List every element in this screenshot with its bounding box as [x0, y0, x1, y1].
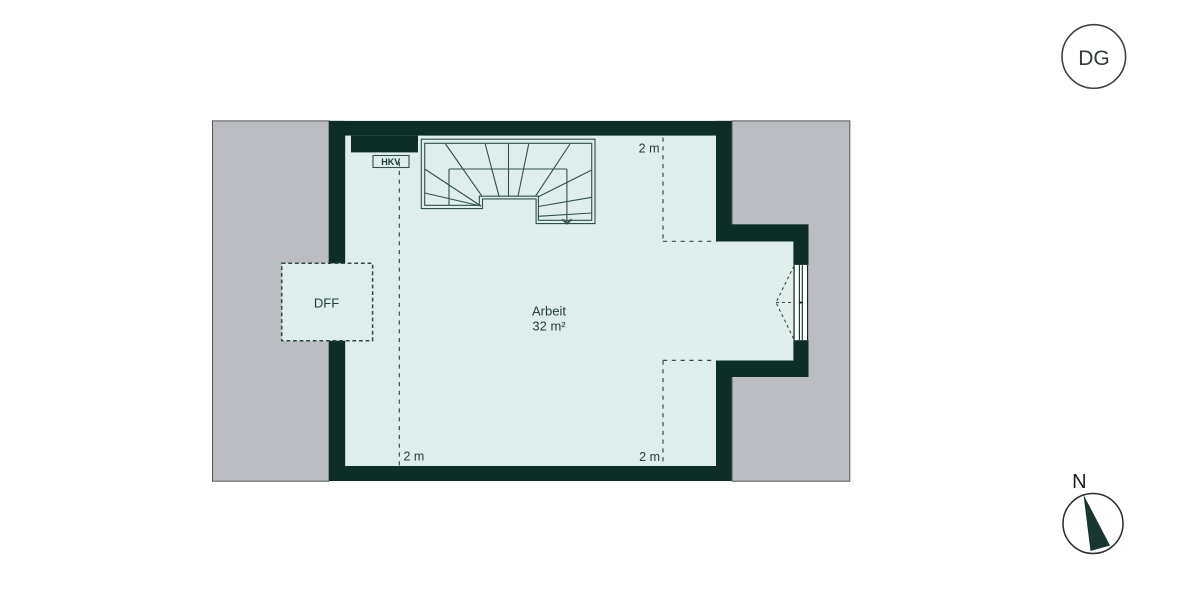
- svg-text:32 m²: 32 m²: [532, 319, 566, 334]
- svg-text:Arbeit: Arbeit: [532, 303, 566, 318]
- svg-text:N: N: [1072, 471, 1086, 493]
- svg-text:HKV: HKV: [381, 157, 400, 167]
- svg-text:2 m: 2 m: [639, 450, 660, 464]
- svg-text:DFF: DFF: [314, 295, 339, 310]
- svg-text:2 m: 2 m: [639, 141, 660, 155]
- svg-text:2 m: 2 m: [404, 449, 425, 463]
- svg-text:DG: DG: [1078, 47, 1110, 70]
